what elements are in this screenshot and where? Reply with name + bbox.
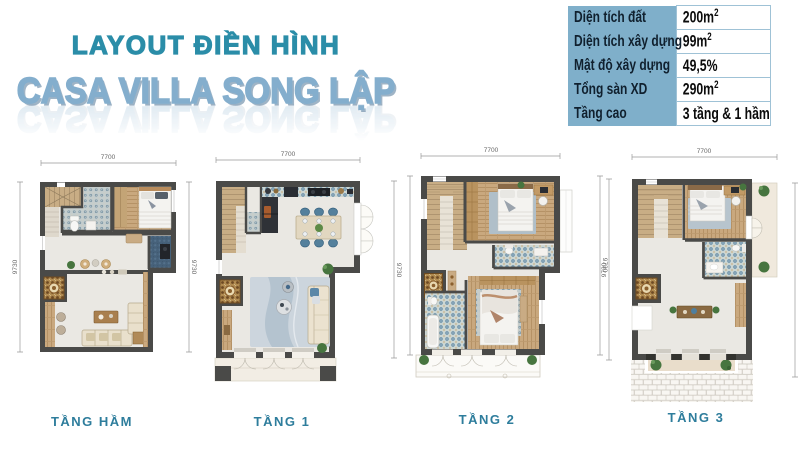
svg-text:7700: 7700 xyxy=(484,147,499,154)
svg-text:9730: 9730 xyxy=(190,260,197,275)
svg-text:9730: 9730 xyxy=(12,259,19,274)
svg-text:7700: 7700 xyxy=(101,154,116,161)
svg-text:9730: 9730 xyxy=(395,263,402,278)
svg-text:7700: 7700 xyxy=(697,148,712,155)
svg-text:9730: 9730 xyxy=(601,262,608,277)
svg-text:7700: 7700 xyxy=(281,151,296,158)
